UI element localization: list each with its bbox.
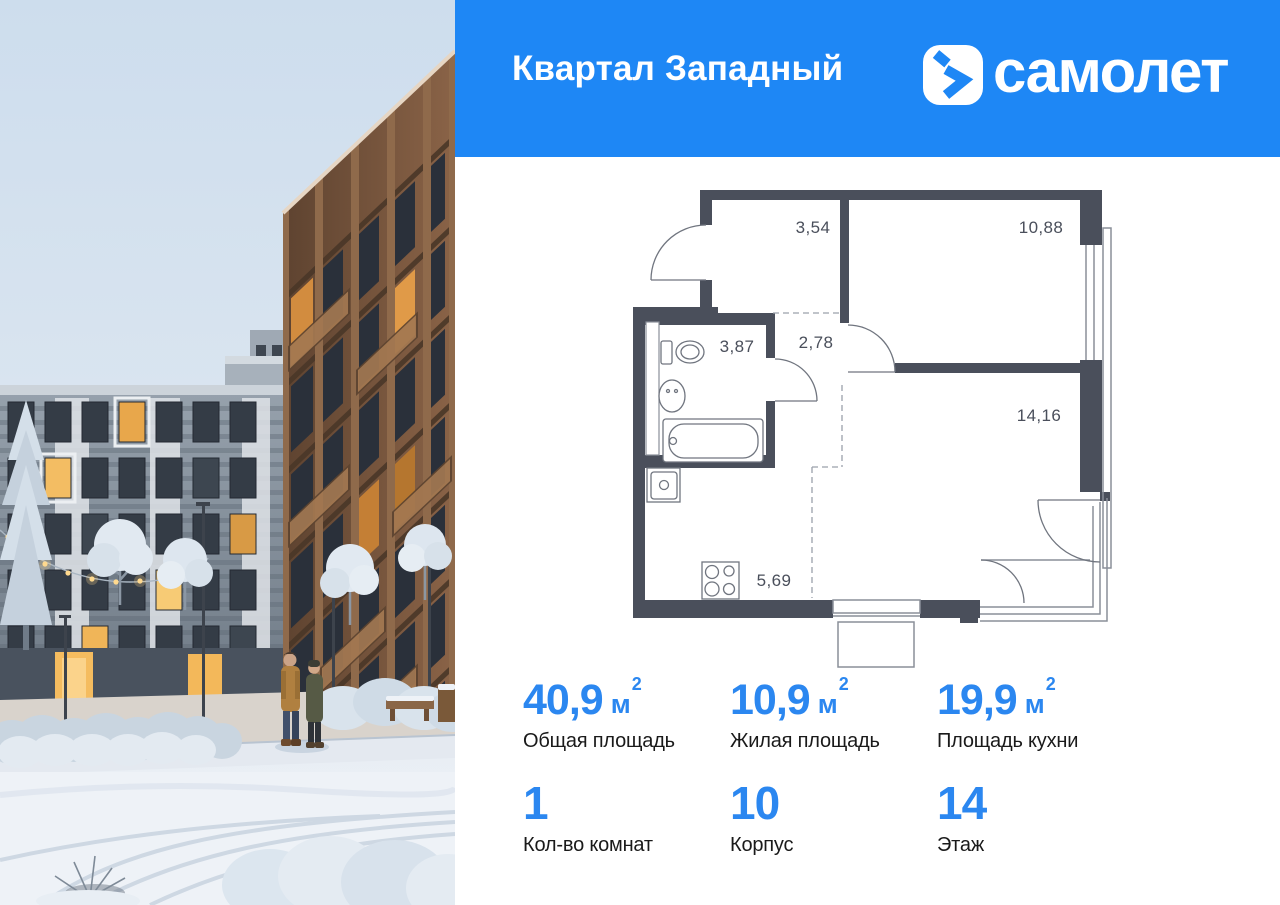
stat-label: Общая площадь: [523, 731, 675, 751]
stat-rooms-count: 1 Кол-во комнат: [523, 785, 653, 855]
room-area-kitchen: 5,69: [757, 571, 792, 590]
project-photo: [0, 0, 455, 905]
room-area-bathroom: 3,87: [720, 337, 755, 356]
stat-value: 19,9: [937, 682, 1017, 718]
stat-label: Площадь кухни: [937, 731, 1078, 751]
room-area-room: 14,16: [1017, 406, 1062, 425]
stat-building: 10 Корпус: [730, 785, 793, 855]
stat-total-area: 40,9 м2 Общая площадь: [523, 682, 675, 751]
samolet-logo-text: самолет: [993, 42, 1228, 102]
samolet-logo-icon: [923, 45, 983, 105]
room-area-hallway: 3,54: [796, 218, 831, 237]
stat-label: Жилая площадь: [730, 731, 880, 751]
stat-label: Этаж: [937, 835, 986, 855]
stat-value: 10: [730, 785, 779, 822]
project-title: Квартал Западный: [512, 50, 843, 88]
developer-logo: самолет: [923, 45, 1228, 105]
kitchen-fixtures: [647, 468, 739, 599]
room-area-corridor: 2,78: [799, 333, 834, 352]
stat-value: 14: [937, 785, 986, 822]
header: Квартал Западный самолет: [455, 0, 1280, 157]
stat-label: Кол-во комнат: [523, 835, 653, 855]
hedge: [0, 712, 242, 768]
stat-living-area: 10,9 м2 Жилая площадь: [730, 682, 880, 751]
stat-floor: 14 Этаж: [937, 785, 986, 855]
listing-card: Квартал Западный самолет: [0, 0, 1280, 905]
vent-shaft: [646, 322, 659, 455]
stat-label: Корпус: [730, 835, 793, 855]
bathroom-fixtures: [659, 341, 763, 462]
floor-plan: 3,54 10,88 3,87 2,78 14,16 5,69: [628, 182, 1115, 674]
stat-value: 40,9: [523, 682, 603, 718]
dashed-boundaries: [773, 313, 842, 598]
stat-value: 10,9: [730, 682, 810, 718]
balcony: [833, 600, 920, 667]
stat-value: 1: [523, 785, 548, 822]
stat-kitchen-area: 19,9 м2 Площадь кухни: [937, 682, 1078, 751]
room-area-living: 10,88: [1019, 218, 1064, 237]
loggia: [980, 498, 1107, 621]
